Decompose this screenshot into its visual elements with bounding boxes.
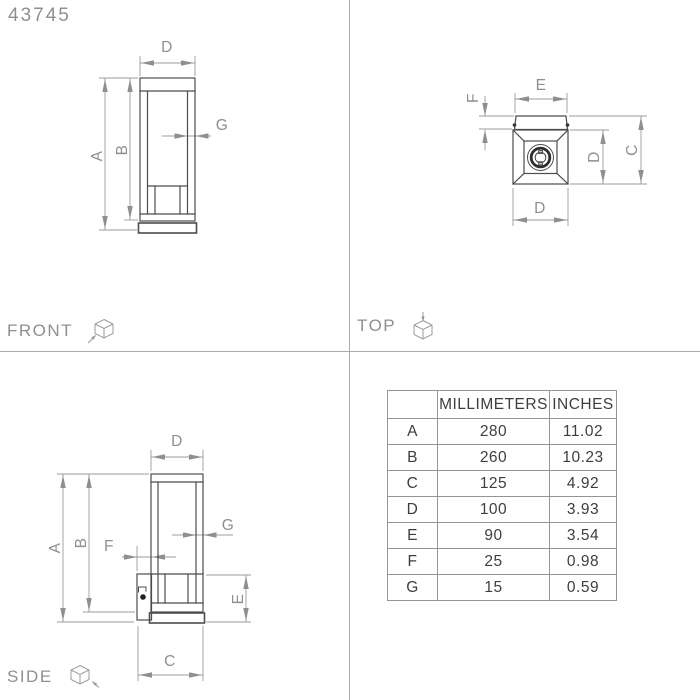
inches-value-cell: 3.93	[550, 497, 617, 523]
front-view-label-row: FRONT	[7, 317, 117, 344]
top-view-drawing: E F D C D	[465, 77, 647, 226]
dim-letter-cell: C	[388, 471, 438, 497]
dim-letter-cell: D	[388, 497, 438, 523]
table-row: F 25 0.98	[388, 549, 617, 575]
inches-value-cell: 10.23	[550, 445, 617, 471]
side-view-label-row: SIDE	[7, 663, 100, 690]
mm-value-cell: 125	[438, 471, 550, 497]
side-dim-label-a: A	[47, 542, 64, 553]
top-view-label: TOP	[357, 316, 396, 336]
table-row: E 90 3.54	[388, 523, 617, 549]
top-view-label-row: TOP	[357, 311, 436, 341]
front-view-cube-icon	[87, 317, 117, 344]
side-dim-label-e: E	[230, 594, 247, 605]
side-dim-label-f: F	[104, 538, 114, 555]
dim-letter-cell: B	[388, 445, 438, 471]
mm-value-cell: 100	[438, 497, 550, 523]
table-header-inches: INCHES	[550, 391, 617, 419]
table-row: B 260 10.23	[388, 445, 617, 471]
table-row: G 15 0.59	[388, 575, 617, 601]
mm-value-cell: 25	[438, 549, 550, 575]
top-dim-label-d-right: D	[586, 151, 603, 163]
front-dim-label-b: B	[114, 145, 131, 156]
side-object-lines	[137, 474, 205, 623]
side-view-label: SIDE	[7, 667, 53, 687]
inches-value-cell: 4.92	[550, 471, 617, 497]
mm-value-cell: 280	[438, 419, 550, 445]
front-dim-label-a: A	[89, 150, 106, 161]
top-dim-label-e: E	[536, 77, 547, 94]
front-view-drawing: D A B G	[89, 39, 228, 233]
dim-letter-cell: E	[388, 523, 438, 549]
table-header-row: MILLIMETERS INCHES	[388, 391, 617, 419]
table-row: D 100 3.93	[388, 497, 617, 523]
side-view-drawing: D A B F G E C	[47, 433, 251, 681]
side-dim-label-b: B	[73, 538, 90, 549]
table-corner-cell	[388, 391, 438, 419]
front-view-label: FRONT	[7, 321, 73, 341]
side-dimension-lines	[57, 450, 251, 681]
front-object-lines	[139, 78, 197, 233]
dimensions-table: MILLIMETERS INCHES A 280 11.02 B 260 10.…	[387, 390, 617, 601]
side-dim-label-c: C	[164, 653, 176, 670]
dim-letter-cell: G	[388, 575, 438, 601]
table-row: C 125 4.92	[388, 471, 617, 497]
inches-value-cell: 11.02	[550, 419, 617, 445]
top-dimension-lines	[479, 93, 647, 226]
side-view-cube-icon	[67, 663, 100, 690]
product-code: 43745	[8, 5, 71, 27]
top-object-lines	[513, 116, 570, 184]
inches-value-cell: 0.59	[550, 575, 617, 601]
dim-letter-cell: A	[388, 419, 438, 445]
mm-value-cell: 90	[438, 523, 550, 549]
top-dim-label-d-bottom: D	[534, 200, 546, 217]
inches-value-cell: 0.98	[550, 549, 617, 575]
top-dim-label-f: F	[465, 93, 482, 103]
mm-value-cell: 15	[438, 575, 550, 601]
front-dim-label-g: G	[216, 117, 229, 134]
technical-drawing-page: D A B G	[0, 0, 700, 700]
side-dim-label-g: G	[222, 517, 235, 534]
front-dim-label-d: D	[161, 39, 173, 56]
inches-value-cell: 3.54	[550, 523, 617, 549]
table-row: A 280 11.02	[388, 419, 617, 445]
table-header-millimeters: MILLIMETERS	[438, 391, 550, 419]
side-dim-label-d: D	[171, 433, 183, 450]
dim-letter-cell: F	[388, 549, 438, 575]
top-view-cube-icon	[410, 311, 436, 341]
top-dim-label-c: C	[624, 144, 641, 156]
mm-value-cell: 260	[438, 445, 550, 471]
